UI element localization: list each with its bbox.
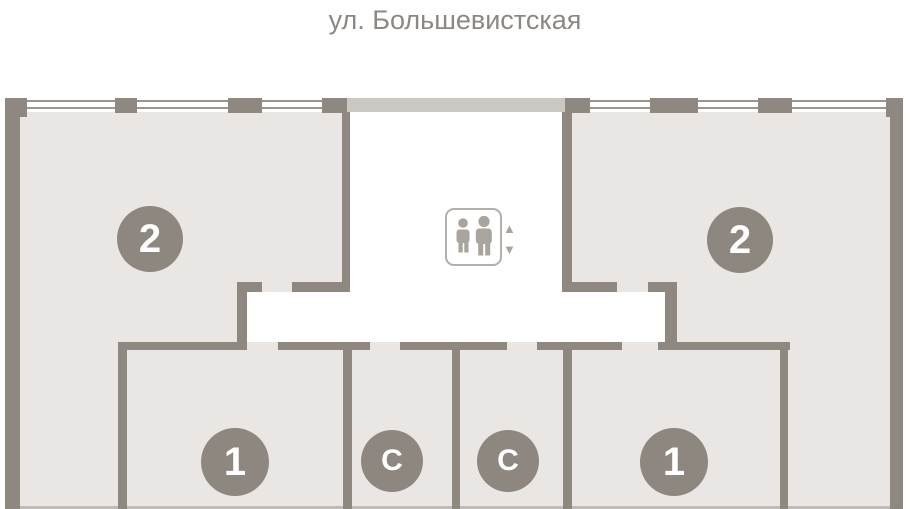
hall-wall-left	[342, 112, 350, 282]
window	[27, 100, 115, 109]
room-badge-2-right[interactable]: 2	[707, 207, 773, 273]
window	[792, 100, 888, 109]
room-badge-studio-right[interactable]: С	[477, 430, 539, 492]
room-wall	[120, 342, 245, 350]
hall-wall-right	[562, 112, 572, 292]
elevator-box	[445, 208, 502, 266]
partition-wall	[343, 342, 352, 509]
elevator-down-arrow-icon: ▼	[503, 243, 516, 256]
street-title: ул. Большевистская	[0, 5, 910, 36]
elevator-people-icon	[447, 210, 500, 264]
room-wall	[537, 342, 622, 350]
room-wall	[658, 342, 790, 350]
room-wall	[278, 342, 370, 350]
wall-pier	[758, 98, 792, 113]
corridor-wall-left	[237, 282, 247, 350]
corridor-wall	[292, 282, 350, 292]
partition-wall	[118, 342, 127, 509]
outer-wall-right	[890, 98, 903, 509]
window	[137, 100, 228, 109]
wall-pier	[565, 98, 590, 113]
window	[590, 100, 650, 109]
elevator-up-arrow-icon: ▲	[503, 222, 516, 235]
room-badge-2-left[interactable]: 2	[117, 206, 183, 272]
wall-pier	[322, 98, 347, 113]
partition-wall	[780, 342, 788, 509]
window	[698, 100, 758, 109]
outer-wall-left	[5, 98, 20, 509]
floorplan-screenshot: ул. Большевистская 2 2 1 С С	[0, 0, 910, 509]
partition-wall	[452, 342, 460, 509]
corridor	[247, 292, 665, 342]
window	[262, 100, 322, 109]
corridor-wall	[572, 282, 617, 292]
room-badge-studio-left[interactable]: С	[361, 430, 423, 492]
room-badge-1-left[interactable]: 1	[201, 428, 269, 496]
wall-pier	[228, 98, 262, 113]
partition-wall	[563, 342, 572, 509]
corridor-wall	[648, 282, 677, 292]
room-badge-1-right[interactable]: 1	[640, 428, 708, 496]
top-facade-band	[347, 98, 565, 112]
wall-pier	[115, 98, 137, 113]
wall-pier	[650, 98, 698, 113]
